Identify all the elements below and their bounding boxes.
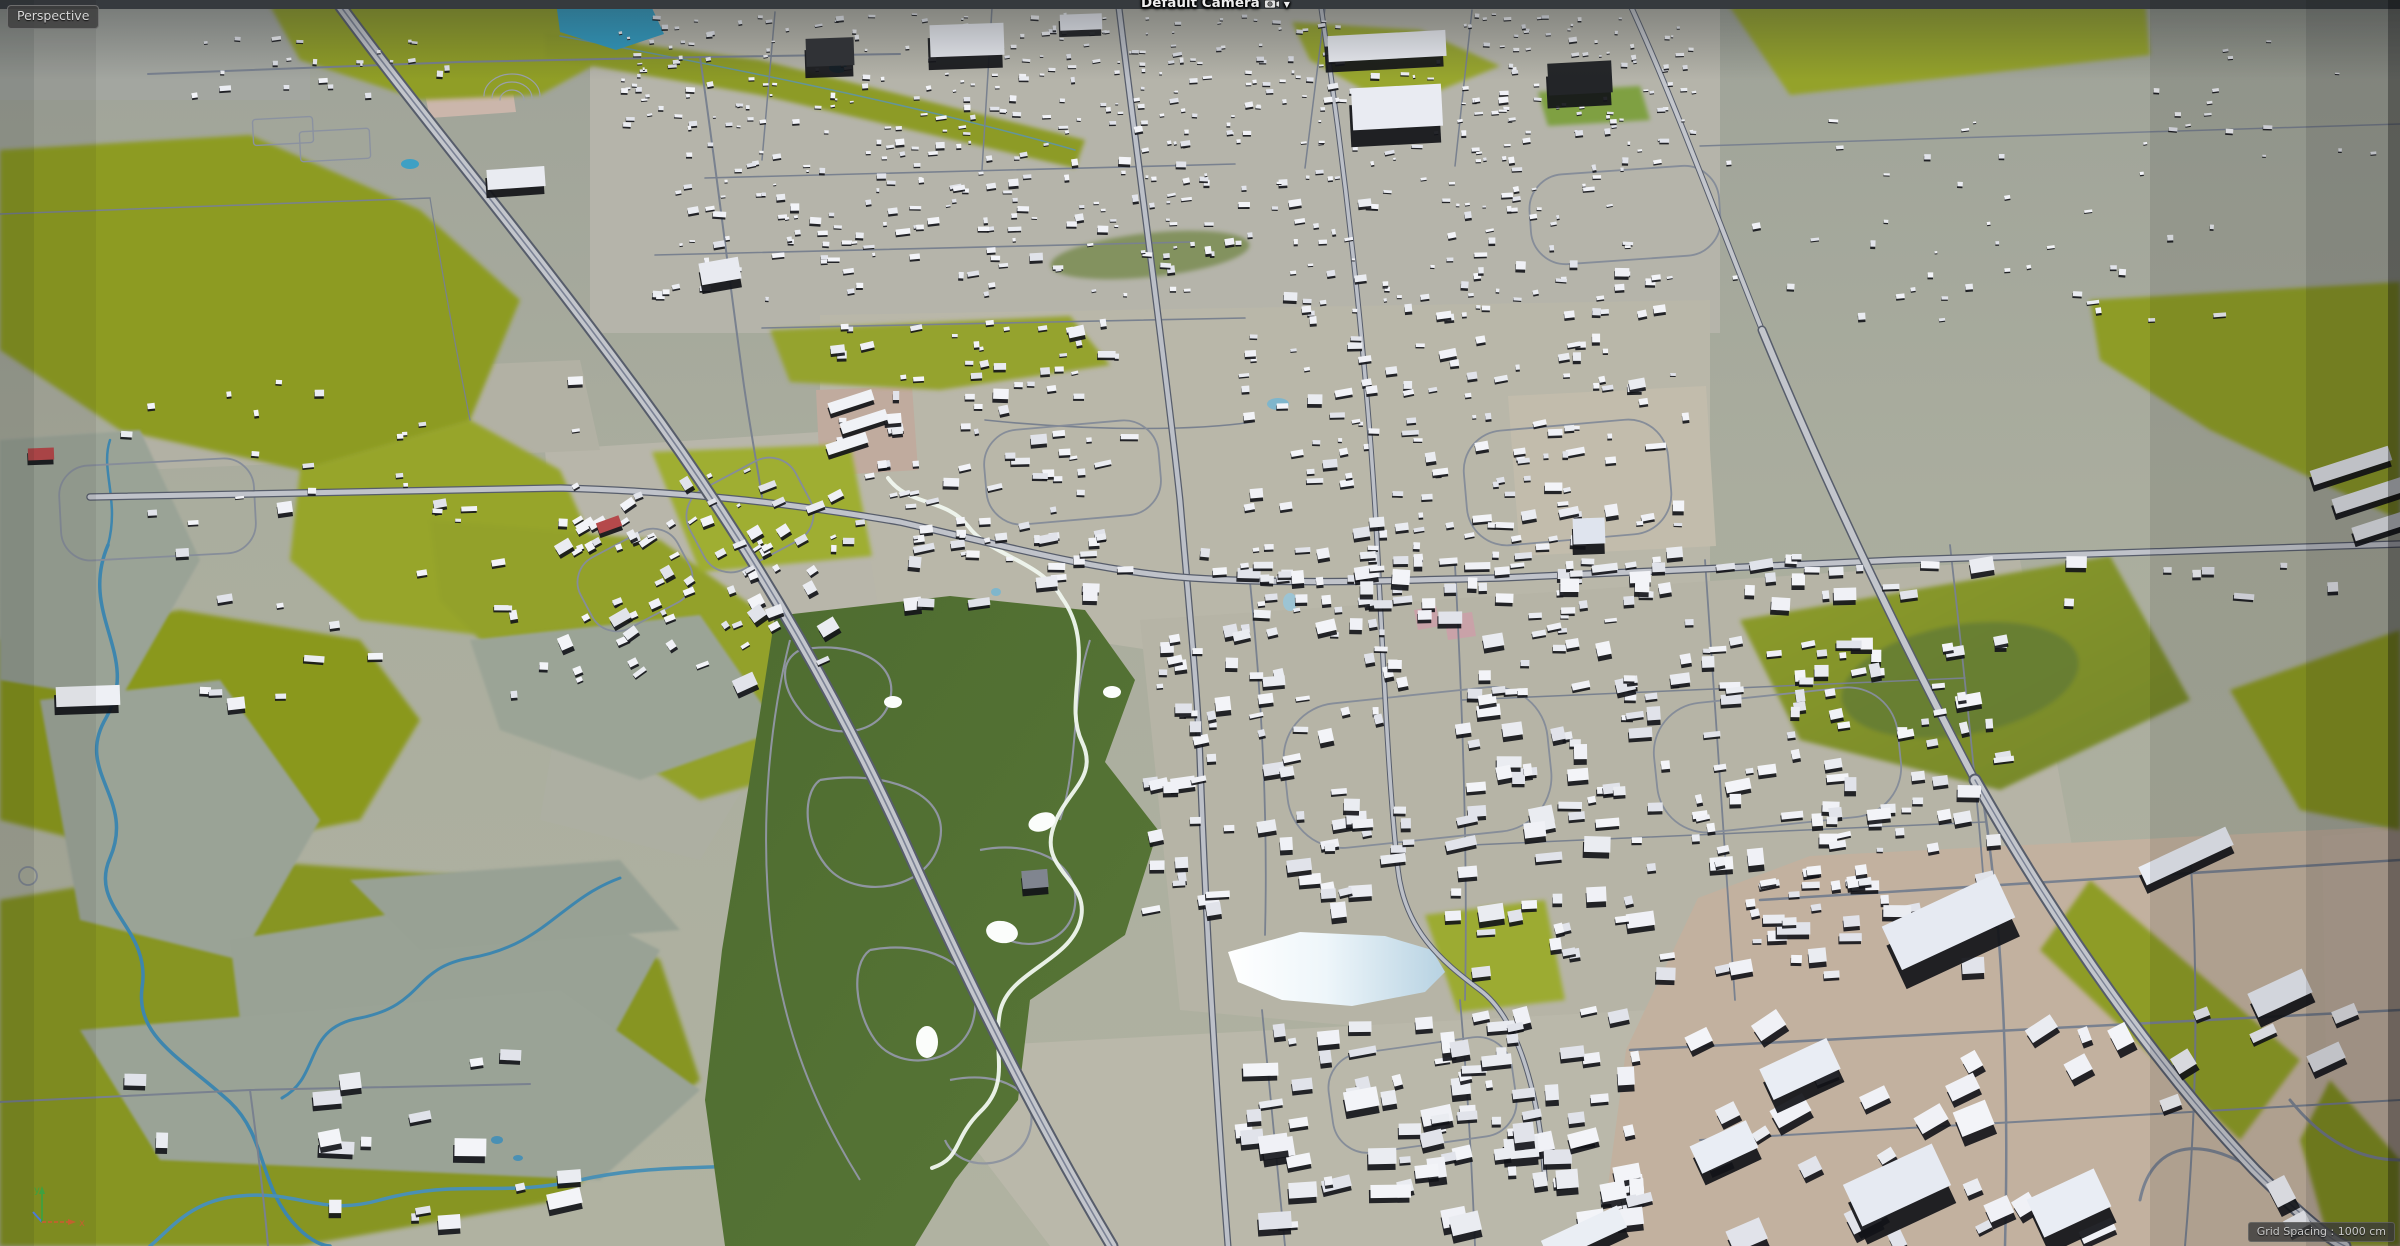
z-axis: [33, 1212, 42, 1222]
x-axis-label: x: [79, 1218, 85, 1229]
grid-spacing-status: Grid Spacing : 1000 cm: [2248, 1222, 2395, 1242]
view-mode-text: Perspective: [17, 8, 89, 23]
viewport-window: Perspective Default Camera ▼ Grid Spacin…: [0, 0, 2400, 1246]
grid-spacing-text: Grid Spacing : 1000 cm: [2257, 1225, 2386, 1238]
chevron-down-icon: ▼: [1284, 0, 1290, 9]
axis-gizmo[interactable]: y x: [16, 1182, 96, 1240]
camera-selector[interactable]: Default Camera ▼: [1141, 0, 1290, 11]
view-mode-label[interactable]: Perspective: [7, 5, 99, 29]
camera-name-text: Default Camera: [1141, 0, 1260, 11]
y-axis-label: y: [34, 1185, 40, 1196]
scene-3d-viewport[interactable]: [0, 0, 2400, 1246]
x-axis-arrow: [68, 1219, 76, 1225]
camera-icon: [1264, 0, 1280, 9]
